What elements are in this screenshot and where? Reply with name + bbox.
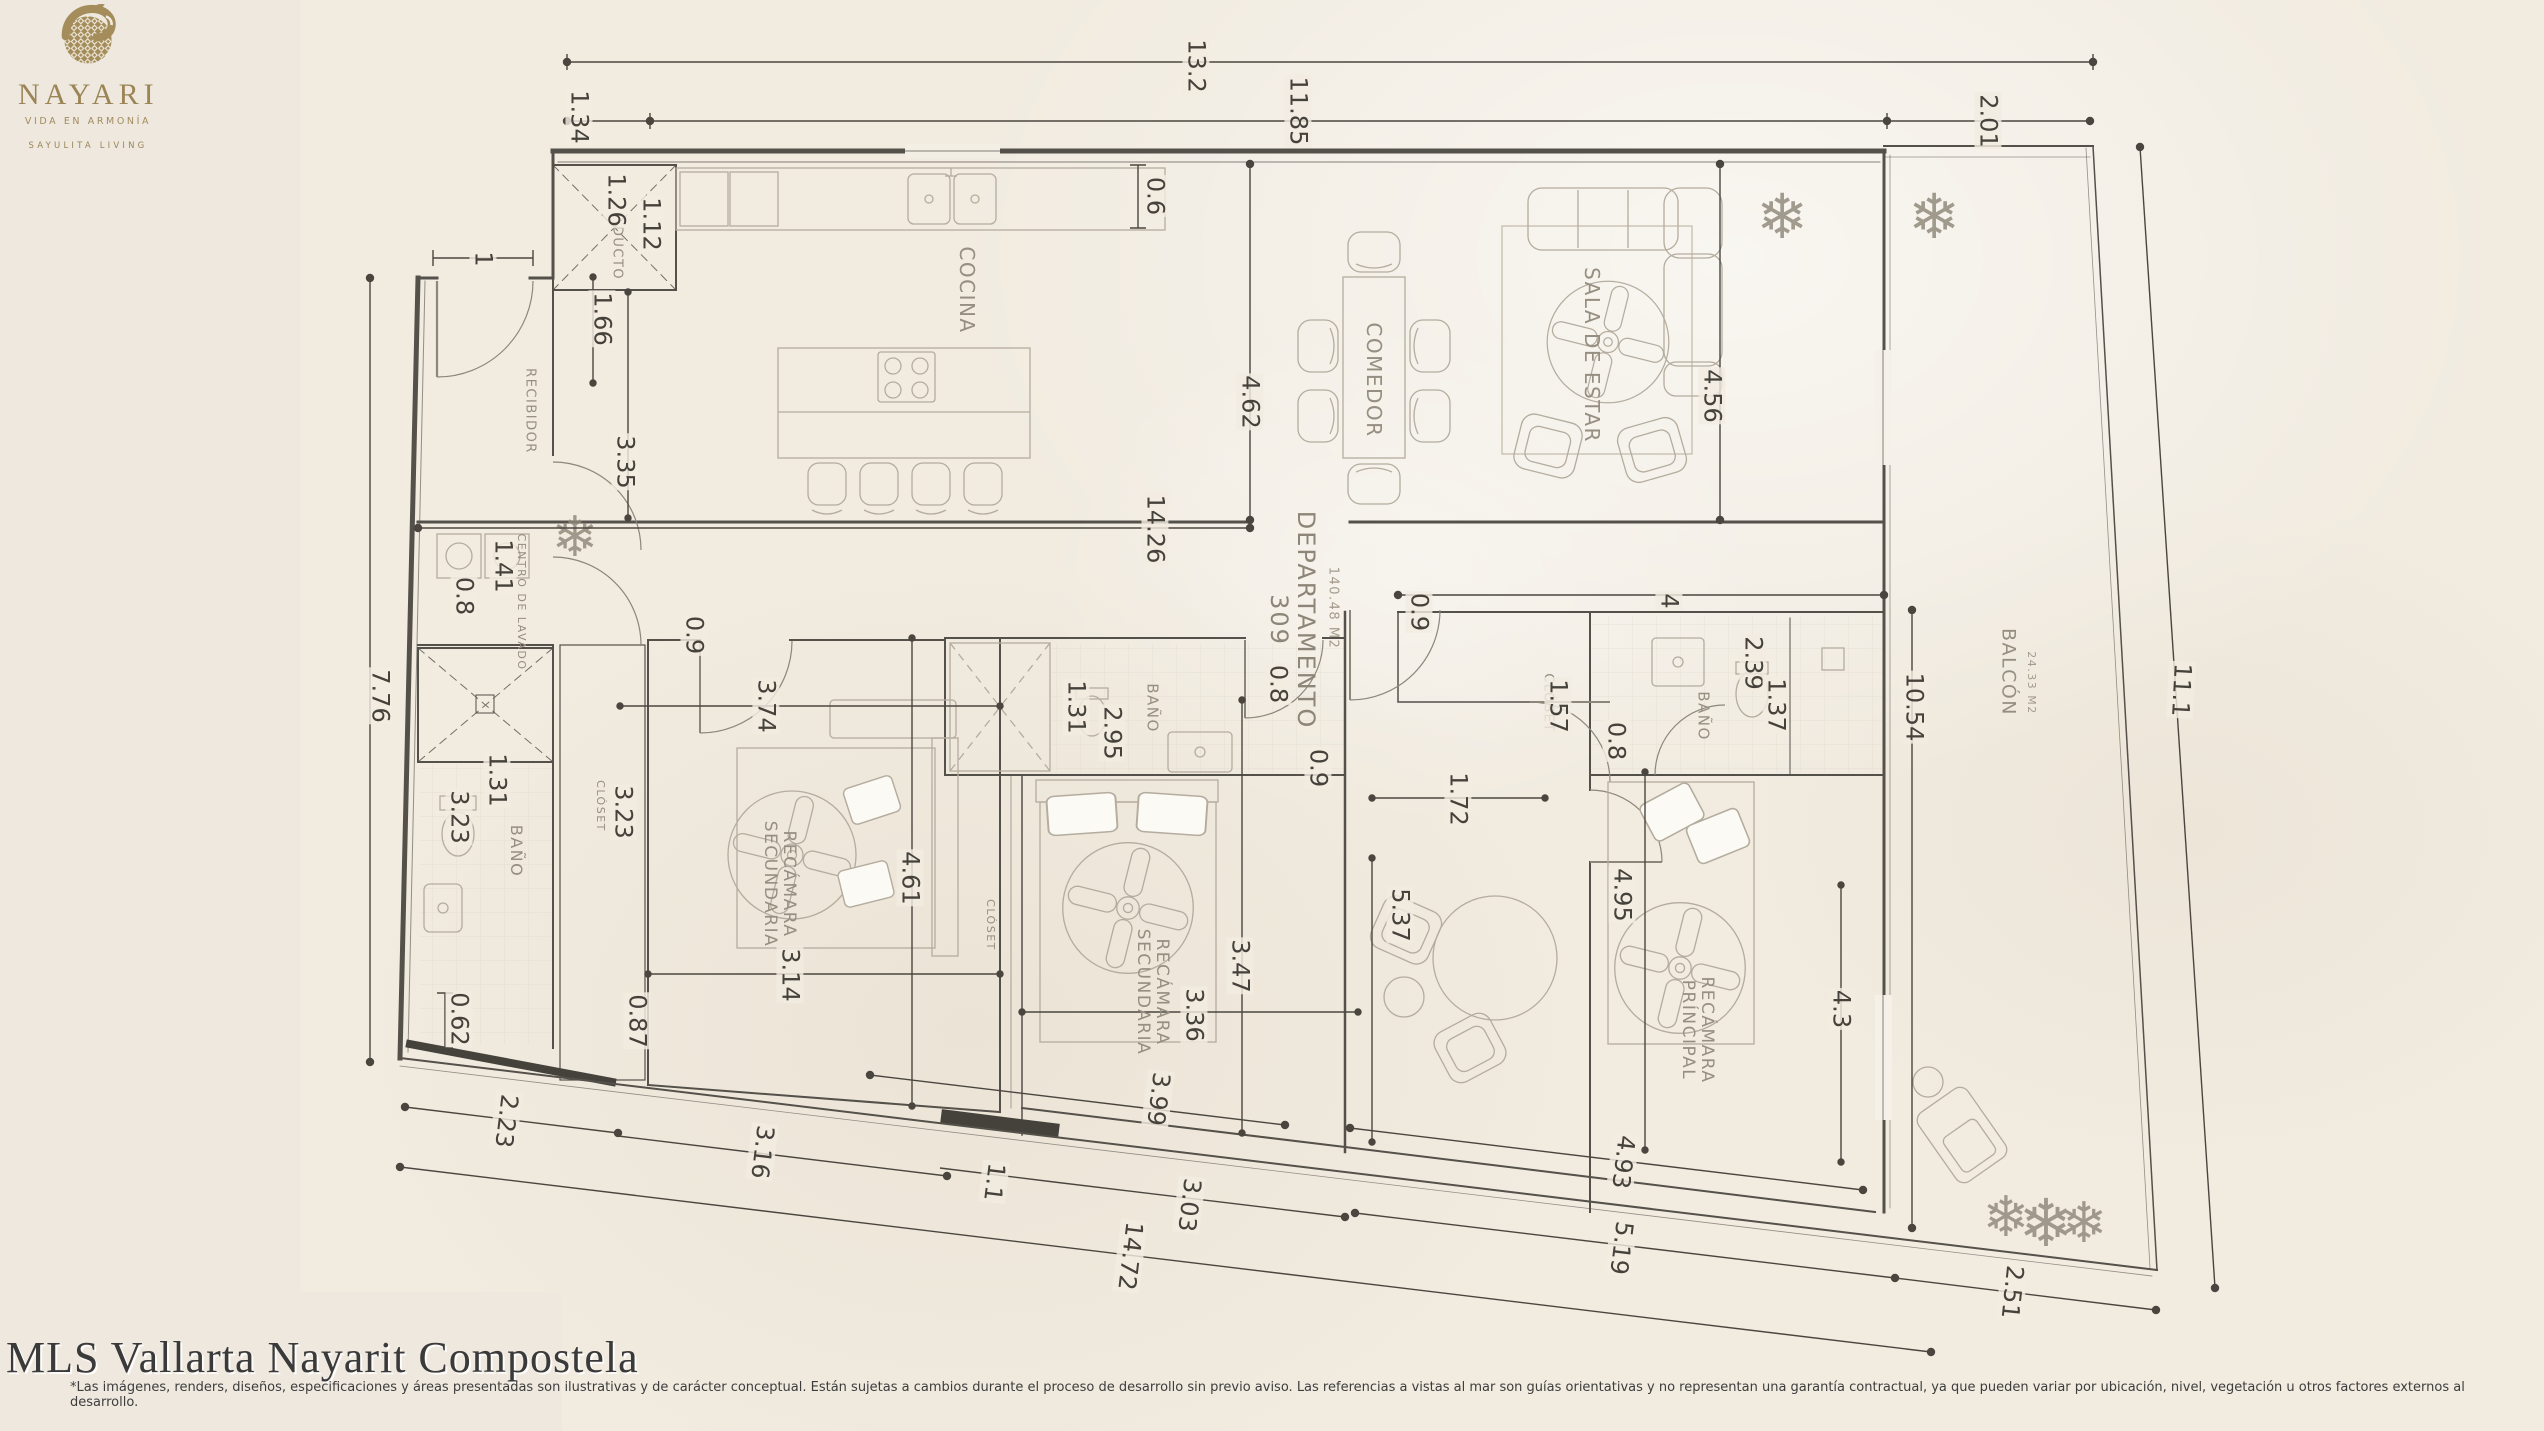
floorplan-page: NAYARI VIDA EN ARMONÍA SAYULITA LIVING [0,0,2544,1431]
sitting-area [1366,892,1557,1087]
legal-disclaimer: *Las imágenes, renders, diseños, especif… [70,1380,2490,1410]
bed-1 [728,700,958,956]
kitchen-island [778,348,1030,514]
laundry-machines [437,534,529,578]
dining-table [1298,232,1450,504]
balcony-lounge [1913,1067,2011,1187]
floorplan-drawing: ❄ ❄ ❄ ❄ ❄ ❄ [0,0,2544,1431]
page-title: MLS Vallarta Nayarit Compostela [6,1332,639,1383]
plant-icon: ❄ [1756,180,1808,253]
plant-icon: ❄ [2061,1191,2108,1256]
bed-2 [1036,780,1218,1042]
plant-icon: ❄ [1908,180,1960,253]
kitchen-counter [676,168,1165,230]
sofa-living [1502,188,1722,485]
bed-3 [1608,781,1754,1044]
plant-icon: ❄ [552,505,599,570]
